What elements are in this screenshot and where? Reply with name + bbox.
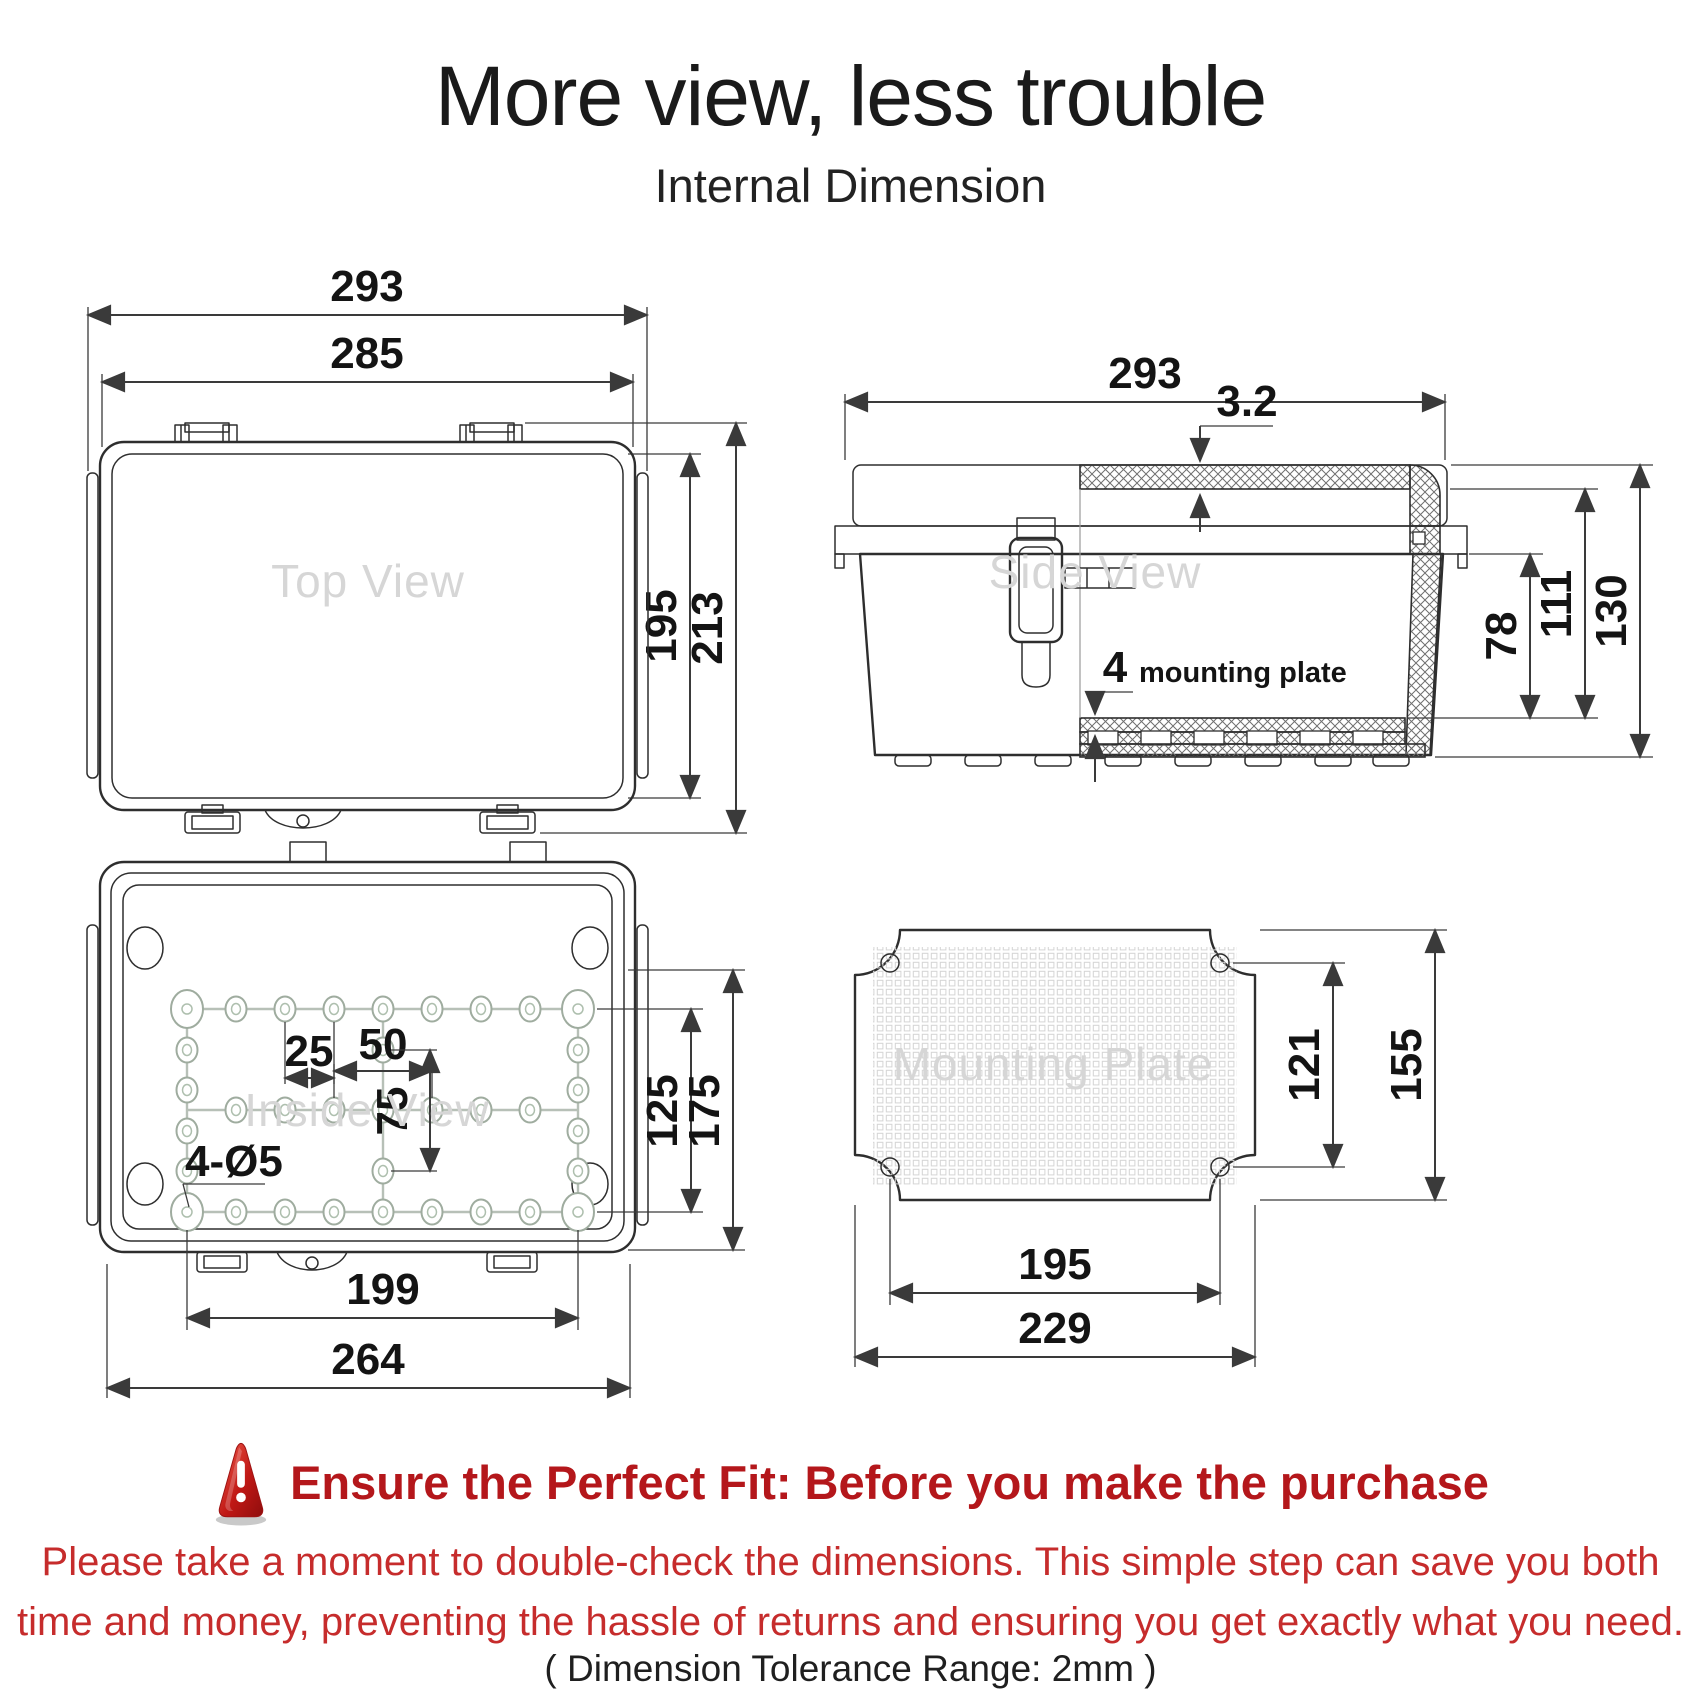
dim-top-lid-height: 195 <box>637 589 686 662</box>
page-title: More view, less trouble <box>0 48 1701 145</box>
side-view-box <box>835 465 1467 766</box>
wall-tab-hole <box>297 815 309 827</box>
side-view-dimensions: 293 3.2 4 mounting plate 78 111 130 <box>845 349 1653 782</box>
dim-screw-holes: 4-Ø5 <box>185 1137 283 1186</box>
inside-view-dimensions: 25 50 75 4-Ø5 125 175 199 264 <box>107 970 745 1398</box>
dim-plate-height: 155 <box>1382 1028 1431 1101</box>
side-view-drawing: 293 3.2 4 mounting plate 78 111 130 Side… <box>795 330 1665 795</box>
mounting-plate-watermark: Mounting Plate <box>893 1038 1214 1090</box>
dim-side-plate-thickness: 4 <box>1103 643 1128 692</box>
dim-plate-hole-span-y: 121 <box>1280 1028 1329 1101</box>
dim-plate-width: 229 <box>1018 1304 1091 1353</box>
dim-top-outer-width: 293 <box>330 262 403 311</box>
dim-plate-hole-span-x: 195 <box>1018 1240 1091 1289</box>
inside-view-drawing: 25 50 75 4-Ø5 125 175 199 264 Inside Vie… <box>85 830 765 1430</box>
top-view-watermark: Top View <box>271 555 465 607</box>
wall-tab-hole <box>306 1257 318 1269</box>
page-subtitle: Internal Dimension <box>0 158 1701 213</box>
hinges <box>175 423 522 442</box>
top-view-box <box>87 423 648 833</box>
warning-body-line1: Please take a moment to double-check the… <box>0 1540 1701 1585</box>
warning-heading: Ensure the Perfect Fit: Before you make … <box>290 1455 1489 1510</box>
warning-row: Ensure the Perfect Fit: Before you make … <box>0 1436 1701 1528</box>
product-dimension-sheet: More view, less trouble Internal Dimensi… <box>0 0 1701 1701</box>
mounting-plate-note: mounting plate <box>1139 657 1347 689</box>
wall-tab <box>265 810 341 828</box>
dim-boss-pitch: 25 <box>285 1027 334 1076</box>
dim-top-outer-height: 213 <box>683 591 732 664</box>
dim-side-inner-depth: 111 <box>1532 570 1581 639</box>
dim-side-outer-width: 293 <box>1108 349 1181 398</box>
warning-body-line2: time and money, preventing the hassle of… <box>0 1600 1701 1645</box>
dim-inner-height: 175 <box>680 1074 729 1147</box>
wall-tab <box>277 1252 347 1270</box>
inside-view-watermark: Inside View <box>244 1084 489 1136</box>
tolerance-note: ( Dimension Tolerance Range: 2mm ) <box>0 1648 1701 1690</box>
warning-icon <box>212 1436 270 1528</box>
dim-side-wall-thickness: 3.2 <box>1216 377 1277 426</box>
dim-boss-span-x: 199 <box>346 1265 419 1314</box>
dim-side-lip-to-plate: 78 <box>1477 612 1526 661</box>
dim-base-width: 264 <box>331 1335 405 1384</box>
dim-center-pitch-x: 50 <box>359 1020 408 1069</box>
mounting-plate-drawing: 121 155 195 229 Mounting Plate <box>795 835 1675 1395</box>
top-view-drawing: 293 285 195 213 <box>85 245 765 845</box>
side-view-watermark: Side View <box>989 546 1202 598</box>
dim-top-lid-width: 285 <box>330 329 403 378</box>
dim-side-outer-depth: 130 <box>1587 574 1636 647</box>
